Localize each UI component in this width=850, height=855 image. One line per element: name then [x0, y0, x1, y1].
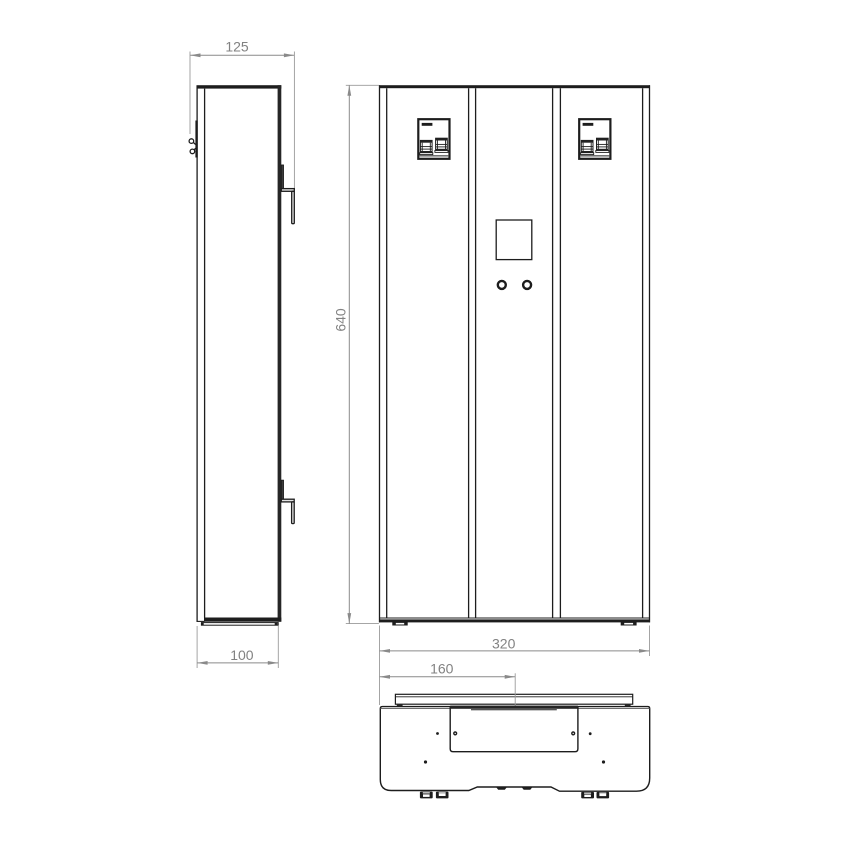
svg-text:160: 160 — [430, 660, 454, 676]
svg-text:125: 125 — [225, 39, 249, 55]
svg-text:100: 100 — [230, 647, 254, 663]
svg-text:640: 640 — [332, 308, 348, 332]
svg-text:320: 320 — [492, 635, 516, 651]
